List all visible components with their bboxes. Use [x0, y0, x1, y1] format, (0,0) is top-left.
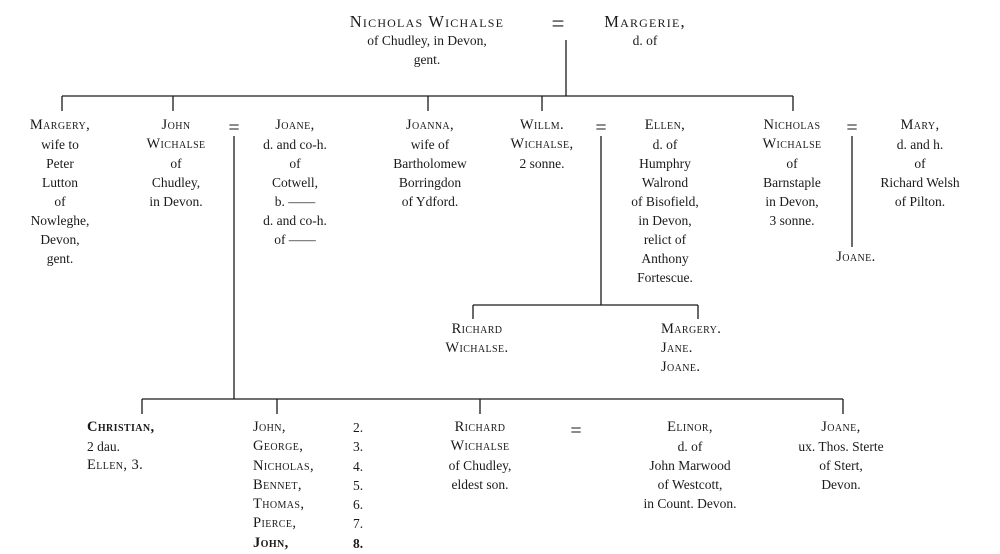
sibling-row: John, 8. — [253, 534, 381, 553]
person-name: Elinor, — [605, 418, 775, 437]
person-desc: d. and h. of Richard Welsh of Pilton. — [855, 135, 985, 211]
person-name: John Wichalse — [126, 116, 226, 154]
person-margerie: Margerie, d. of — [583, 12, 707, 50]
person-desc: ux. Thos. Sterte of Stert, Devon. — [771, 437, 911, 494]
person-elinor: Elinor, d. of John Marwood of Westcott, … — [605, 418, 775, 513]
person-margery: Margery, wife to Peter Lutton of Nowlegh… — [5, 116, 115, 268]
person-name: Margery. Jane. Joane. — [661, 320, 761, 377]
pedigree-page: Nicholas Wichalse of Chudley, in Devon, … — [0, 0, 1000, 554]
person-joane-sterte: Joane, ux. Thos. Sterte of Stert, Devon. — [771, 418, 911, 494]
person-desc: wife to Peter Lutton of Nowleghe, Devon,… — [5, 135, 115, 268]
person-name: Margerie, — [583, 12, 707, 31]
sibling-row: Thomas, 6. — [253, 495, 381, 514]
person-desc: wife of Bartholomew Borringdon of Ydford… — [368, 135, 492, 211]
sibling-name: Bennet, — [253, 476, 353, 495]
sibling-list: John, 2. George, 3. Nicholas, 4. Bennet,… — [253, 418, 381, 553]
sibling-name: Thomas, — [253, 495, 353, 514]
sibling-number: 4. — [353, 457, 363, 476]
person-name: Richard Wichalse — [415, 418, 545, 456]
person-joane-daughter: Joane. — [816, 248, 896, 267]
person-nicholas-wichalse-jr: Nicholas Wichalse of Barnstaple in Devon… — [741, 116, 843, 230]
sibling-name: John, — [253, 418, 353, 437]
person-desc: d. of Humphry Walrond of Bisofield, in D… — [603, 135, 727, 287]
sibling-row: George, 3. — [253, 437, 381, 456]
sibling-name: John, — [253, 534, 353, 553]
sibling-row: Pierce, 7. — [253, 514, 381, 533]
person-name: Ellen, — [603, 116, 727, 135]
person-name: Mary, — [855, 116, 985, 135]
person-desc: 2 sonne. — [492, 154, 592, 173]
person-joanna: Joanna, wife of Bartholomew Borringdon o… — [368, 116, 492, 211]
person-name: Nicholas Wichalse — [312, 12, 542, 31]
person-name: Joane. — [816, 248, 896, 267]
person-margery-jane-joane: Margery. Jane. Joane. — [661, 320, 761, 377]
person-desc: d. of — [583, 31, 707, 50]
person-desc: d. of John Marwood of Westcott, in Count… — [605, 437, 775, 513]
person-mary: Mary, d. and h. of Richard Welsh of Pilt… — [855, 116, 985, 211]
marriage-equals-icon: = — [564, 422, 588, 441]
person-name: Joanna, — [368, 116, 492, 135]
person-ellen: Ellen, d. of Humphry Walrond of Bisofiel… — [603, 116, 727, 287]
person-name: Ellen, 3. — [87, 456, 207, 475]
person-name: Nicholas Wichalse — [741, 116, 843, 154]
person-nicholas-wichalse-sr: Nicholas Wichalse of Chudley, in Devon, … — [312, 12, 542, 69]
sibling-name: George, — [253, 437, 353, 456]
person-john-wichalse: John Wichalse of Chudley, in Devon. — [126, 116, 226, 211]
person-name: Joane, — [771, 418, 911, 437]
sibling-row: John, 2. — [253, 418, 381, 437]
person-name: Richard Wichalse. — [417, 320, 537, 358]
sibling-name: Nicholas, — [253, 457, 353, 476]
person-name: Willm. Wichalse, — [492, 116, 592, 154]
sibling-number: 6. — [353, 495, 363, 514]
sibling-number: 7. — [353, 514, 363, 533]
person-desc: 2 dau. — [87, 437, 207, 456]
sibling-number: 5. — [353, 476, 363, 495]
sibling-name: Pierce, — [253, 514, 353, 533]
person-christian-ellen: Christian, 2 dau. Ellen, 3. — [87, 418, 207, 475]
person-richard-wichalse-gen4: Richard Wichalse of Chudley, eldest son. — [415, 418, 545, 494]
sibling-number: 2. — [353, 418, 363, 437]
sibling-row: Nicholas, 4. — [253, 457, 381, 476]
person-joane: Joane, d. and co-h. of Cotwell, b. —— d.… — [240, 116, 350, 249]
person-name: Joane, — [240, 116, 350, 135]
person-name: Christian, — [87, 418, 207, 437]
marriage-equals-icon: = — [546, 14, 570, 33]
sibling-number: 8. — [353, 534, 363, 553]
person-desc: of Chudley, in Devon. — [126, 154, 226, 211]
person-desc: of Chudley, eldest son. — [415, 456, 545, 494]
person-willm-wichalse: Willm. Wichalse, 2 sonne. — [492, 116, 592, 173]
person-desc: of Chudley, in Devon, gent. — [312, 31, 542, 69]
person-richard-wichalse-gen3: Richard Wichalse. — [417, 320, 537, 358]
person-desc: of Barnstaple in Devon, 3 sonne. — [741, 154, 843, 230]
person-name: Margery, — [5, 116, 115, 135]
person-desc: d. and co-h. of Cotwell, b. —— d. and co… — [240, 135, 350, 249]
sibling-number: 3. — [353, 437, 363, 456]
sibling-row: Bennet, 5. — [253, 476, 381, 495]
